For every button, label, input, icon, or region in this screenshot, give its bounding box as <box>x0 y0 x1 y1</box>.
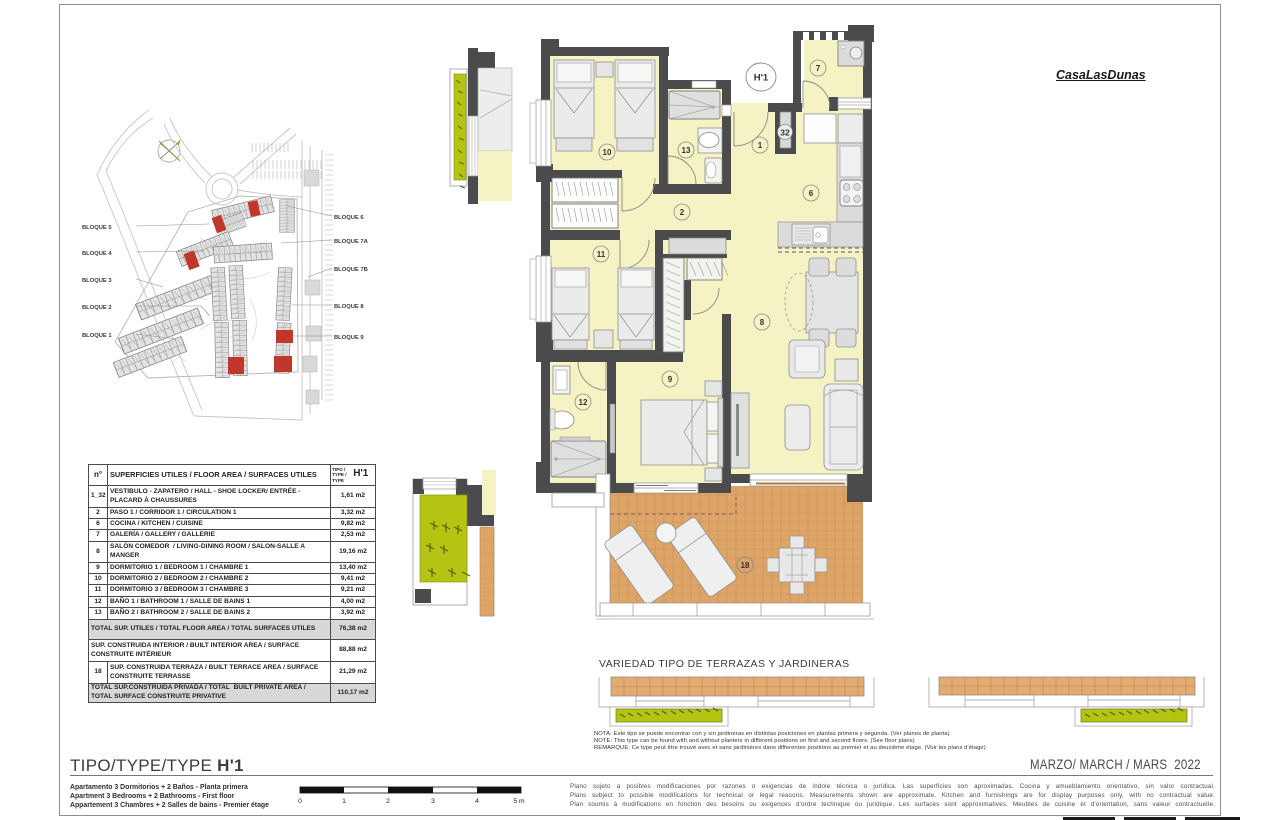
svg-text:BLOQUE 8: BLOQUE 8 <box>334 304 364 310</box>
svg-text:3: 3 <box>431 798 435 805</box>
svg-text:18: 18 <box>741 561 750 570</box>
svg-text:BLOQUE 5: BLOQUE 5 <box>82 225 112 231</box>
svg-text:1: 1 <box>758 141 763 150</box>
svg-text:12: 12 <box>579 398 588 407</box>
svg-text:5 m: 5 m <box>513 798 525 805</box>
svg-text:11: 11 <box>597 250 606 259</box>
svg-text:H'1: H'1 <box>754 73 769 84</box>
svg-text:8: 8 <box>760 318 765 327</box>
svg-text:32: 32 <box>780 128 790 138</box>
svg-text:BLOQUE 7B: BLOQUE 7B <box>334 267 368 273</box>
svg-text:BLOQUE 9: BLOQUE 9 <box>334 335 364 341</box>
svg-text:7: 7 <box>816 64 821 73</box>
svg-text:BLOQUE 1: BLOQUE 1 <box>82 333 112 339</box>
svg-text:1: 1 <box>342 798 346 805</box>
svg-text:BLOQUE 6: BLOQUE 6 <box>334 215 364 221</box>
svg-text:BLOQUE 3: BLOQUE 3 <box>82 278 112 284</box>
svg-text:BLOQUE 2: BLOQUE 2 <box>82 305 112 311</box>
svg-text:6: 6 <box>809 189 814 198</box>
svg-text:2: 2 <box>386 798 390 805</box>
svg-text:13: 13 <box>682 146 691 155</box>
svg-text:4: 4 <box>475 798 479 805</box>
svg-text:BLOQUE 7A: BLOQUE 7A <box>334 239 369 245</box>
svg-text:0: 0 <box>298 798 302 805</box>
svg-text:2: 2 <box>680 208 685 217</box>
svg-text:9: 9 <box>668 375 673 384</box>
svg-text:10: 10 <box>603 148 612 157</box>
svg-text:BLOQUE 4: BLOQUE 4 <box>82 251 112 257</box>
